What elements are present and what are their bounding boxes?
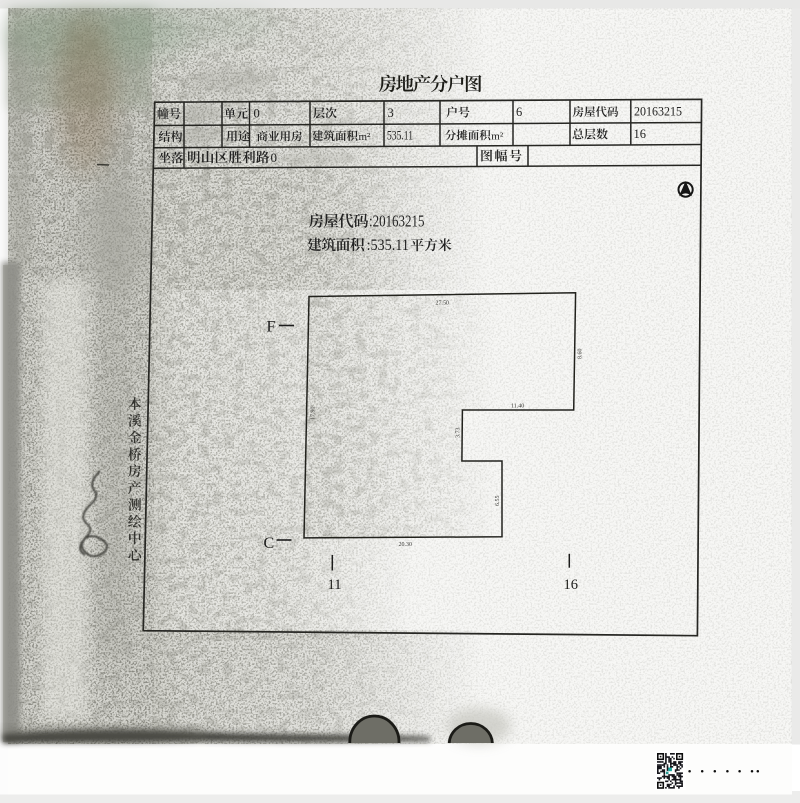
svg-text:8.60: 8.60	[578, 349, 584, 360]
svg-text:0: 0	[271, 150, 278, 165]
svg-text:535.11: 535.11	[387, 128, 413, 143]
svg-text:17.90: 17.90	[311, 407, 317, 421]
svg-text::535.11: :535.11	[367, 237, 410, 254]
svg-text:3: 3	[388, 106, 394, 120]
svg-text:20.30: 20.30	[399, 542, 413, 548]
svg-text:F: F	[267, 319, 276, 336]
svg-text:C: C	[264, 535, 275, 552]
svg-text:m²: m²	[491, 130, 504, 142]
svg-text:0: 0	[254, 107, 260, 121]
svg-text:6: 6	[516, 105, 522, 119]
svg-text:3.73: 3.73	[456, 428, 462, 439]
svg-text:16: 16	[634, 127, 647, 141]
svg-text:11.40: 11.40	[511, 404, 524, 410]
svg-text::20163215: :20163215	[369, 212, 425, 231]
svg-text:16: 16	[564, 577, 579, 593]
svg-text:20163215: 20163215	[634, 104, 682, 119]
svg-text:m²: m²	[359, 131, 372, 143]
svg-text:11: 11	[328, 577, 342, 593]
svg-text:27.50: 27.50	[436, 301, 450, 307]
svg-text:6.55: 6.55	[495, 496, 501, 507]
